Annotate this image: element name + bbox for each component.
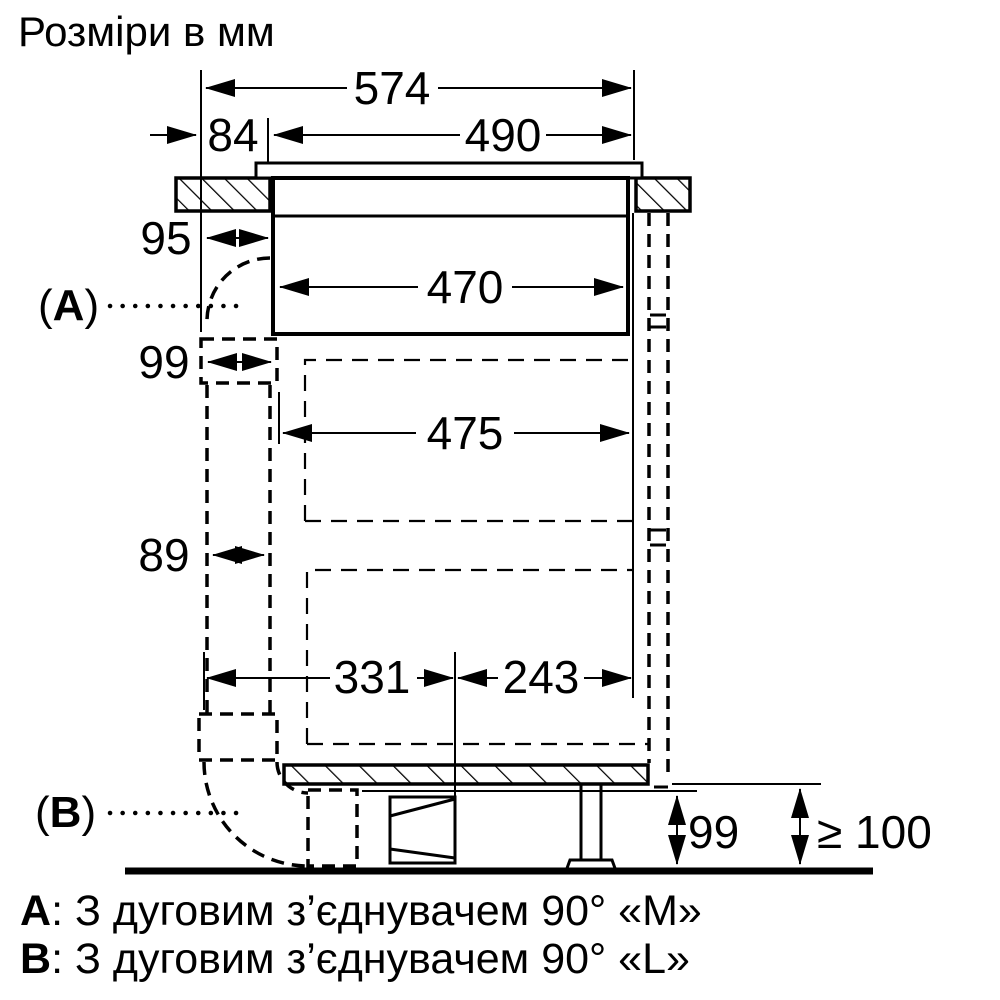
worktop-left-section [176, 178, 270, 211]
footnotes: A: З дуговим з’єднувачем 90° «M» B: З ду… [20, 887, 702, 983]
blower-unit [390, 797, 455, 863]
dim-99-bottom-label: 99 [688, 806, 739, 858]
installation-drawing-page: Розміри в мм [0, 0, 1000, 1000]
dim-95-label: 95 [140, 212, 191, 264]
note-b: B: З дуговим з’єднувачем 90° «L» [20, 935, 690, 983]
duct-outlet-box [308, 790, 357, 866]
dim-331-label: 331 [334, 651, 411, 703]
elbow-a-arc [207, 258, 270, 321]
glass-panel [256, 163, 642, 178]
installation-diagram: Розміри в мм [0, 0, 1000, 1000]
dim-89-label: 89 [138, 529, 189, 581]
dim-490-label: 490 [465, 109, 542, 161]
dim-475-label: 475 [427, 407, 504, 459]
dim-99-top-label: 99 [138, 336, 189, 388]
dimension-331: 331 [204, 651, 453, 710]
dimension-95: 95 [140, 212, 268, 264]
dim-470-label: 470 [427, 261, 504, 313]
dim-243-label: 243 [503, 651, 580, 703]
page-title: Розміри в мм [18, 8, 275, 55]
shelf-panel [284, 765, 648, 784]
callout-a-label: (A) [38, 281, 99, 330]
dim-84-label: 84 [207, 109, 258, 161]
dimension-574: 574 [206, 62, 631, 114]
worktop-right-section [636, 178, 690, 211]
dimension-490: 490 [268, 109, 631, 162]
dimension-99-bottom: 99 [677, 796, 739, 864]
callout-b-label: (B) [35, 788, 96, 837]
dim-100-label: ≥ 100 [817, 806, 932, 858]
dimension-89: 89 [138, 529, 264, 581]
dimension-84: 84 [150, 109, 259, 161]
dim-574-label: 574 [354, 62, 431, 114]
callout-a: (A) [38, 281, 245, 330]
note-a: A: З дуговим з’єднувачем 90° «M» [20, 887, 702, 935]
dimension-min-100: ≥ 100 [800, 789, 932, 864]
duct-connector-bottom [199, 714, 277, 760]
cabinet-leg [566, 784, 616, 871]
dimension-99-top: 99 [138, 336, 271, 388]
dimension-243: 243 [458, 651, 631, 703]
callout-b: (B) [35, 788, 245, 837]
dimension-475: 475 [279, 392, 629, 459]
